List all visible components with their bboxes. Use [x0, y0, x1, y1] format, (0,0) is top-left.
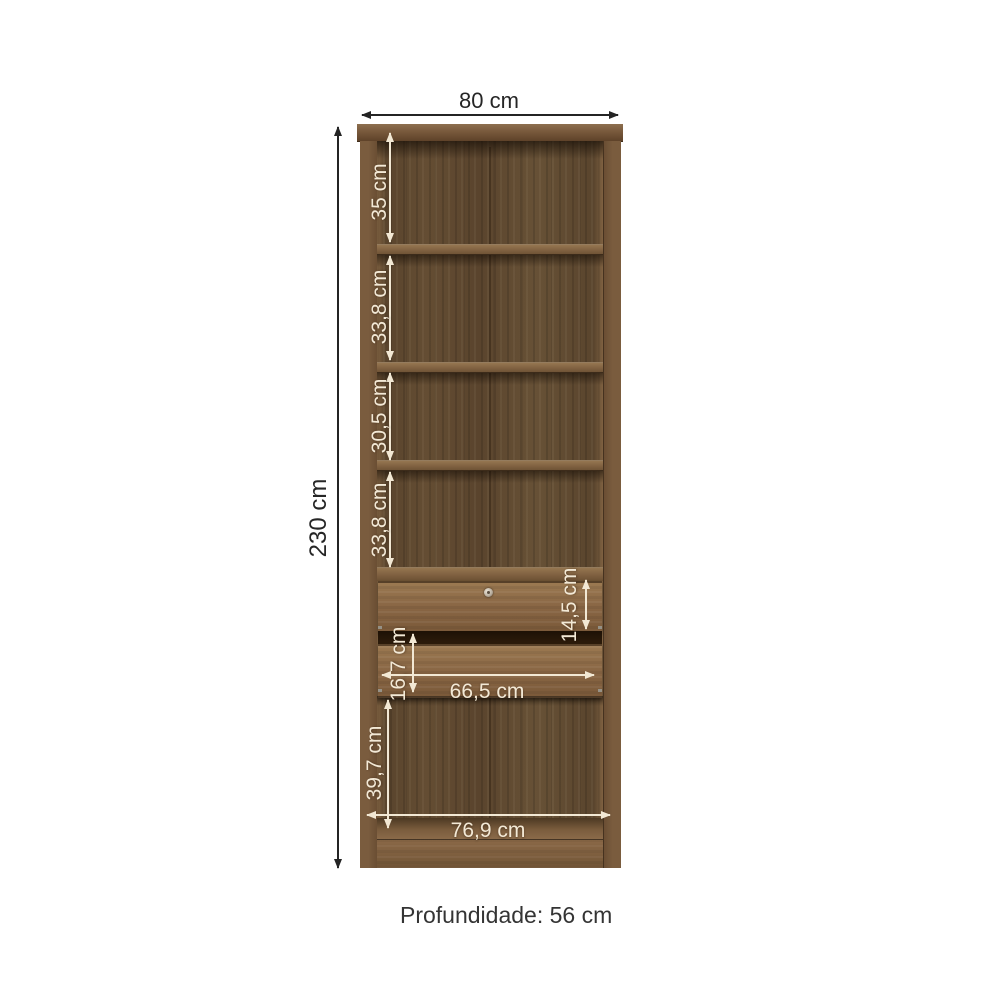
dim-bottom-width-arrow — [367, 814, 610, 816]
dim-section-3-label: 30,5 cm — [368, 379, 392, 454]
cabinet-base-panel — [377, 839, 603, 868]
dim-bottom-width-label: 76,9 cm — [451, 819, 526, 843]
dim-total-width-label: 80 cm — [459, 88, 519, 114]
shelf-3-shadow — [377, 470, 603, 483]
dim-drawer-2-arrow — [412, 634, 414, 692]
dim-section-4-label: 33,8 cm — [368, 483, 392, 558]
dim-drawer-2-label: 16,7 cm — [387, 627, 411, 702]
dim-drawer-width-arrow — [382, 674, 594, 676]
dim-drawer-1-arrow — [585, 580, 587, 629]
dim-bottom-section-arrow — [387, 700, 389, 828]
dim-total-height-label: 230 cm — [305, 479, 333, 558]
cabinet-interior — [377, 141, 603, 868]
dimension-diagram: 80 cm 230 cm 35 cm 33,8 cm 30,5 cm 33,8 … — [0, 0, 1000, 1000]
dim-bottom-section-label: 39,7 cm — [363, 726, 387, 801]
depth-note: Profundidade: 56 cm — [400, 902, 612, 929]
cabinet-right-side-panel — [603, 141, 621, 868]
drawer-slide-mark — [598, 626, 602, 629]
dim-section-2-label: 33,8 cm — [368, 270, 392, 345]
drawer-slide-mark — [378, 689, 382, 692]
shelf-1-shadow — [377, 254, 603, 267]
drawer-slide-mark — [378, 626, 382, 629]
shelf-2-shadow — [377, 372, 603, 385]
drawer-lock-icon — [484, 588, 493, 597]
dim-section-1-label: 35 cm — [368, 163, 392, 220]
drawer-slide-mark — [598, 689, 602, 692]
under-crown-shadow — [377, 141, 603, 159]
dim-drawer-1-label: 14,5 cm — [558, 568, 582, 643]
dim-total-width-arrow — [362, 114, 618, 116]
dim-drawer-width-label: 66,5 cm — [450, 680, 525, 704]
dim-total-height-arrow — [337, 127, 339, 868]
cabinet-top-crown — [357, 124, 623, 142]
